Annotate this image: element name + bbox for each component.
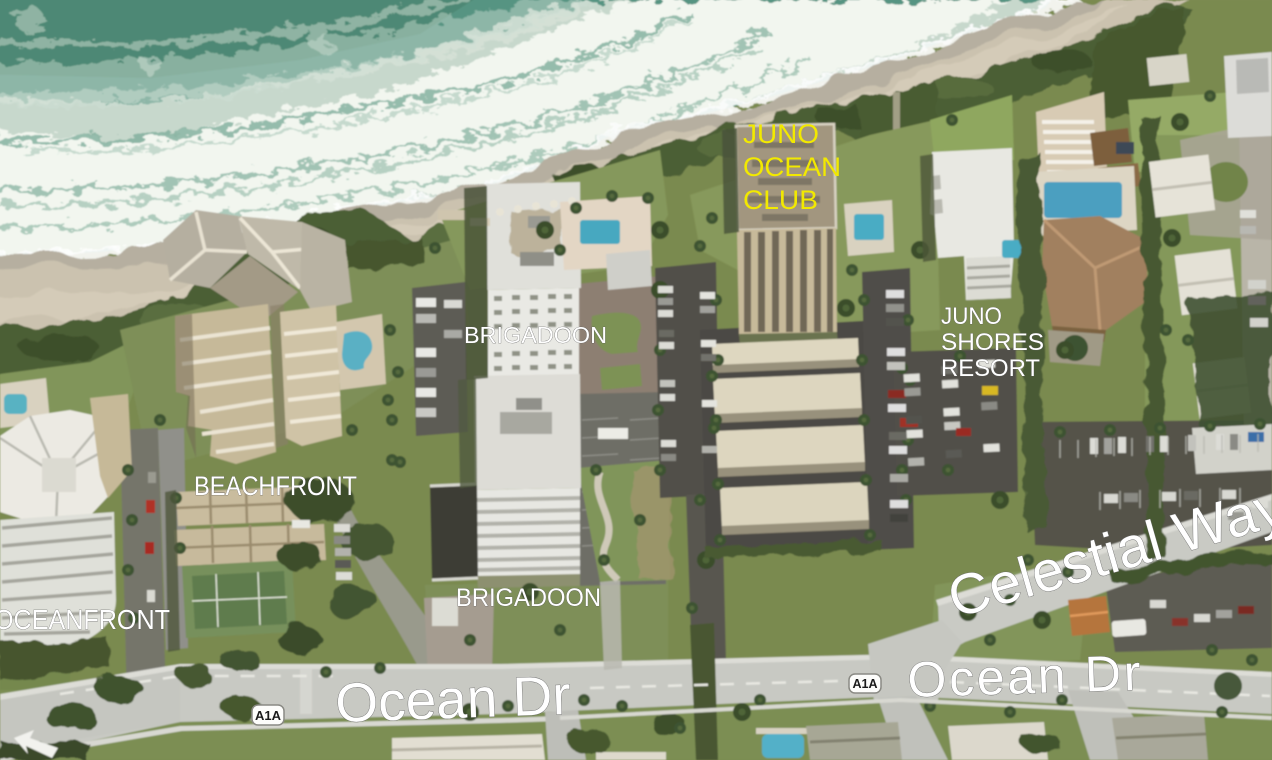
svg-text:OCEAN: OCEAN <box>743 152 841 182</box>
svg-text:BRIGADOON: BRIGADOON <box>464 322 607 348</box>
svg-text:JUNO: JUNO <box>941 303 1002 330</box>
svg-text:RESORT: RESORT <box>941 355 1040 382</box>
svg-text:Ocean Dr: Ocean Dr <box>334 664 571 734</box>
svg-text:JUNO: JUNO <box>743 119 819 149</box>
svg-text:CLUB: CLUB <box>743 185 818 215</box>
svg-text:A1A: A1A <box>852 677 877 691</box>
svg-text:SHORES: SHORES <box>941 329 1044 356</box>
svg-text:BRIGADOON: BRIGADOON <box>456 584 601 612</box>
svg-text:A1A: A1A <box>255 708 282 723</box>
svg-text:OCEANFRONT: OCEANFRONT <box>0 604 170 635</box>
svg-text:BEACHFRONT: BEACHFRONT <box>194 471 357 501</box>
svg-text:Ocean Dr: Ocean Dr <box>907 645 1142 708</box>
